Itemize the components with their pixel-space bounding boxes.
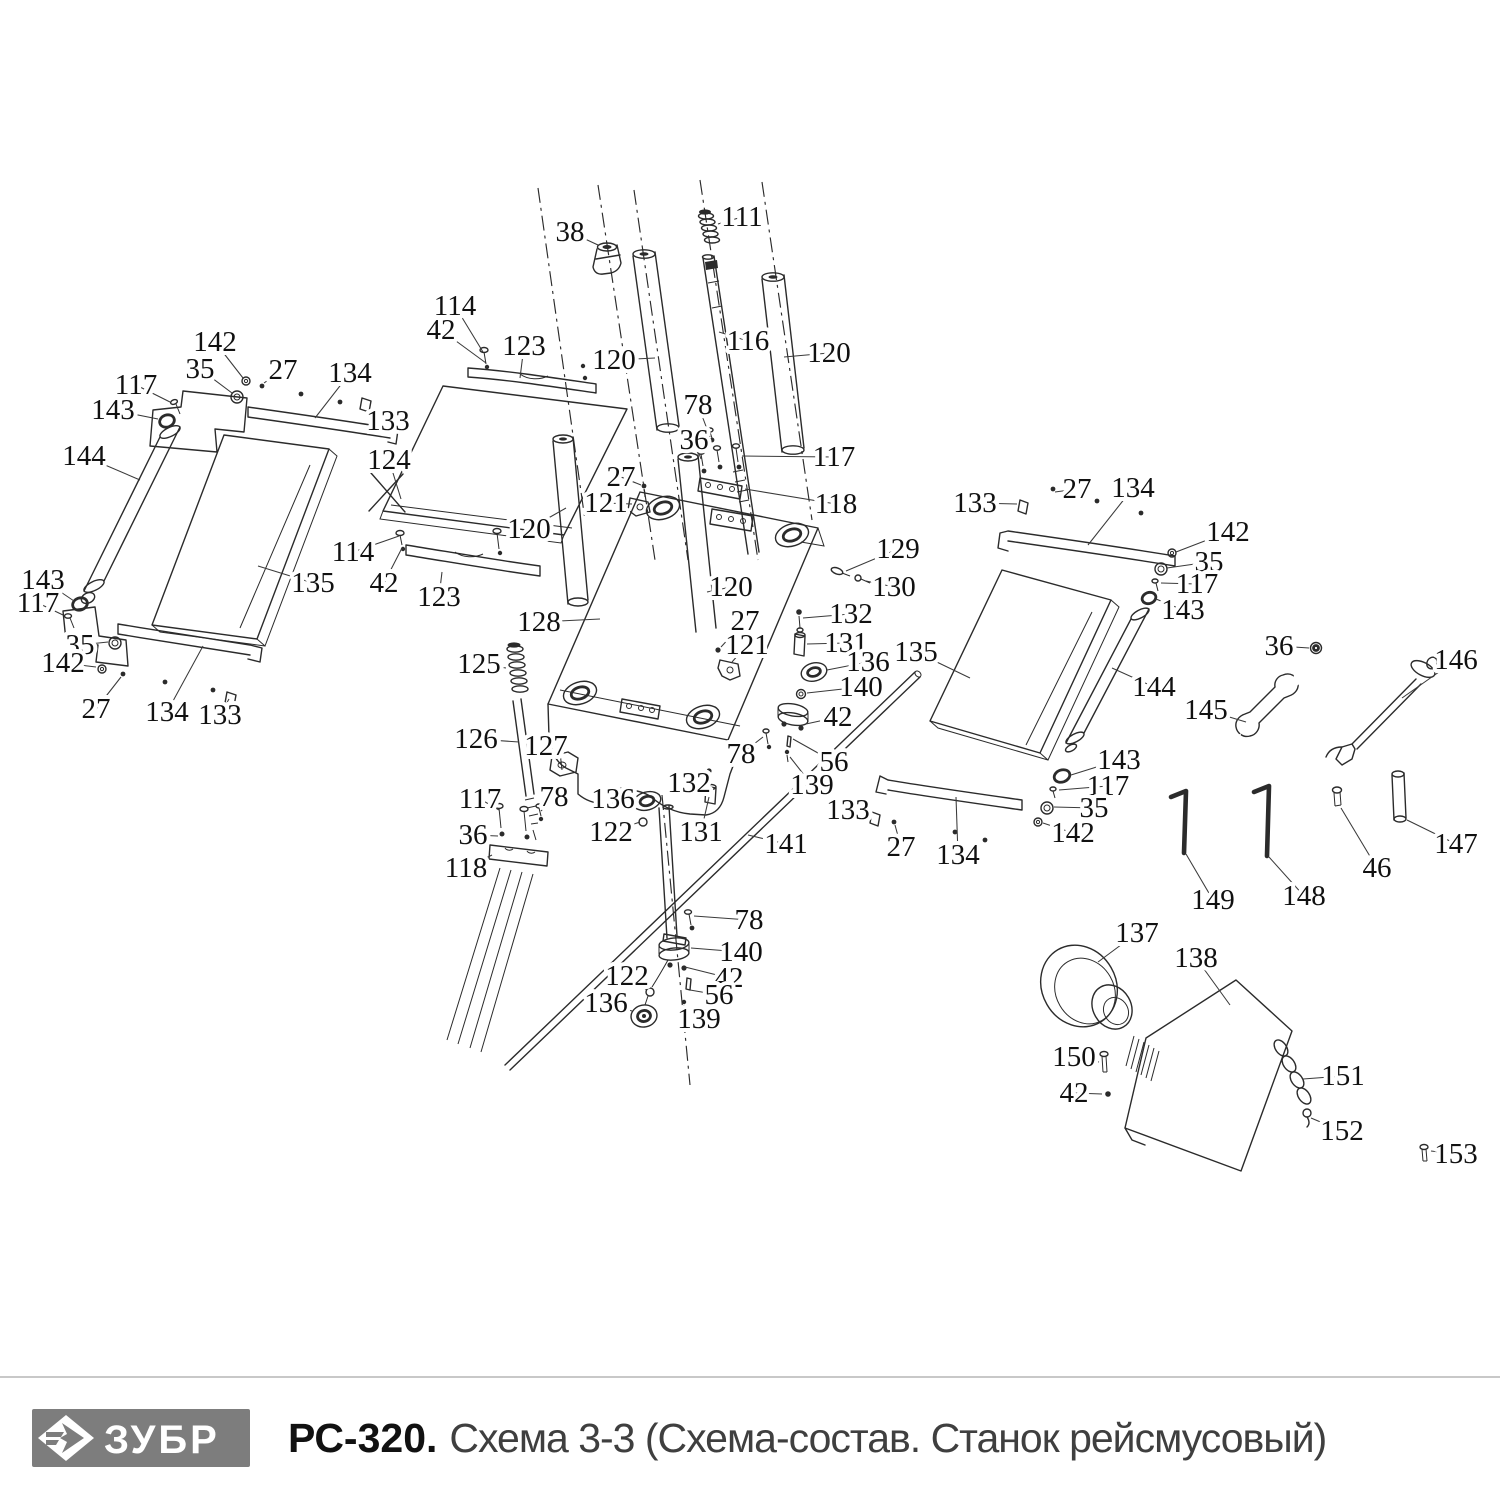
part-callout-134: 134 xyxy=(145,696,189,728)
part-callout-130: 130 xyxy=(872,571,916,603)
part-callout-131: 131 xyxy=(679,816,723,848)
part-callout-134: 134 xyxy=(328,357,372,389)
part-callout-126: 126 xyxy=(454,723,498,755)
part-callout-133: 133 xyxy=(366,405,410,437)
part-callout-27: 27 xyxy=(82,693,111,725)
part-callout-124: 124 xyxy=(367,444,411,476)
part-callout-138: 138 xyxy=(1174,942,1218,974)
part-callout-114: 114 xyxy=(332,536,375,568)
part-callout-133: 133 xyxy=(953,487,997,519)
part-callout-146: 146 xyxy=(1434,644,1478,676)
brand-name: ЗУБР xyxy=(104,1418,220,1462)
part-callout-117: 117 xyxy=(813,441,855,473)
schema-subtitle: Схема 3-3 (Схема-состав. Станок рейсмусо… xyxy=(449,1415,1326,1461)
part-callout-120: 120 xyxy=(709,571,753,603)
part-callout-120: 120 xyxy=(507,513,551,545)
part-callout-150: 150 xyxy=(1052,1041,1096,1073)
part-callout-125: 125 xyxy=(457,648,501,680)
part-callout-42: 42 xyxy=(370,567,399,599)
callout-leader-lines xyxy=(38,217,1456,1154)
part-callout-135: 135 xyxy=(291,567,335,599)
exploded-diagram: 3811111442123120116120142351171432713413… xyxy=(0,0,1500,1376)
part-callout-27: 27 xyxy=(887,831,916,863)
part-callout-144: 144 xyxy=(62,440,106,472)
part-callout-152: 152 xyxy=(1320,1115,1364,1147)
part-callout-121: 121 xyxy=(725,629,769,661)
part-callout-27: 27 xyxy=(269,354,298,386)
nut-38 xyxy=(593,243,621,274)
part-callout-142: 142 xyxy=(1051,817,1095,849)
part-callout-128: 128 xyxy=(517,606,561,638)
footer-title: РС-320.Схема 3-3 (Схема-состав. Станок р… xyxy=(288,1415,1326,1462)
part-callout-120: 120 xyxy=(807,337,851,369)
part-callout-78: 78 xyxy=(735,904,764,936)
part-callout-118: 118 xyxy=(815,488,857,520)
part-callout-144: 144 xyxy=(1132,671,1176,703)
part-callout-42: 42 xyxy=(1060,1077,1089,1109)
screw-rod-126 xyxy=(513,699,538,840)
part-callout-46: 46 xyxy=(1363,852,1392,884)
part-callout-111: 111 xyxy=(721,201,762,233)
pin-147 xyxy=(1392,771,1406,822)
part-callout-142: 142 xyxy=(1206,516,1250,548)
part-callout-139: 139 xyxy=(677,1003,721,1035)
part-callout-36: 36 xyxy=(459,819,488,851)
part-callout-141: 141 xyxy=(764,828,808,860)
part-callout-133: 133 xyxy=(198,699,242,731)
part-callout-123: 123 xyxy=(502,330,546,362)
part-callout-118: 118 xyxy=(445,852,487,884)
part-callout-151: 151 xyxy=(1321,1060,1365,1092)
part-callout-134: 134 xyxy=(1111,472,1155,504)
columns-120 xyxy=(553,250,804,632)
part-callout-136: 136 xyxy=(591,783,635,815)
part-callout-36: 36 xyxy=(1265,630,1294,662)
part-callout-42: 42 xyxy=(824,701,853,733)
screw-46 xyxy=(1333,787,1342,806)
part-callout-132: 132 xyxy=(667,767,711,799)
part-callout-127: 127 xyxy=(524,730,568,762)
part-callout-135: 135 xyxy=(894,636,938,668)
spring-125 xyxy=(507,642,528,692)
part-callout-36: 36 xyxy=(680,424,709,456)
part-callout-145: 145 xyxy=(1184,694,1228,726)
wrench-145 xyxy=(1236,674,1298,736)
page: 3811111442123120116120142351171432713413… xyxy=(0,0,1500,1500)
hex-key-148 xyxy=(1254,786,1269,856)
zubr-logo: ЗУБР xyxy=(32,1409,250,1467)
screw-150 xyxy=(1100,1052,1108,1073)
screw-153 xyxy=(1420,1145,1428,1162)
tools xyxy=(1171,643,1439,857)
part-callout-78: 78 xyxy=(540,781,569,813)
hex-key-149 xyxy=(1171,791,1186,853)
part-callout-117: 117 xyxy=(17,587,59,619)
crank-handle-146 xyxy=(1326,655,1439,765)
ring-122-center xyxy=(639,818,647,826)
mounting-bars-123 xyxy=(396,348,596,577)
part-callout-78: 78 xyxy=(727,738,756,770)
model-number: РС-320. xyxy=(288,1415,437,1461)
part-callout-129: 129 xyxy=(876,533,920,565)
screw-42-cover xyxy=(1105,1091,1111,1097)
part-callout-143: 143 xyxy=(1161,594,1205,626)
part-callout-148: 148 xyxy=(1282,880,1326,912)
part-callout-27: 27 xyxy=(1063,473,1092,505)
part-callout-78: 78 xyxy=(684,389,713,421)
cover-138 xyxy=(1125,980,1292,1171)
part-callout-140: 140 xyxy=(839,671,883,703)
part-callout-153: 153 xyxy=(1434,1138,1478,1170)
part-callout-137: 137 xyxy=(1115,917,1159,949)
part-callout-116: 116 xyxy=(727,325,769,357)
part-callout-149: 149 xyxy=(1191,884,1235,916)
part-callout-142: 142 xyxy=(41,647,85,679)
footer-bar: ЗУБР РС-320.Схема 3-3 (Схема-состав. Ста… xyxy=(0,1376,1500,1498)
part-callout-136: 136 xyxy=(584,987,628,1019)
part-callout-122: 122 xyxy=(589,816,633,848)
part-callout-147: 147 xyxy=(1434,828,1478,860)
callout-labels: 3811111442123120116120142351171432713413… xyxy=(17,201,1478,1170)
part-callout-134: 134 xyxy=(936,839,980,871)
part-callout-35: 35 xyxy=(186,353,215,385)
part-callout-42: 42 xyxy=(427,314,456,346)
part-callout-117: 117 xyxy=(459,783,501,815)
part-callout-121: 121 xyxy=(584,487,628,519)
part-callout-132: 132 xyxy=(829,598,873,630)
part-callout-38: 38 xyxy=(556,216,585,248)
part-callout-133: 133 xyxy=(826,794,870,826)
part-callout-120: 120 xyxy=(592,344,636,376)
hook-152 xyxy=(1303,1109,1311,1127)
part-callout-123: 123 xyxy=(417,581,461,613)
part-callout-143: 143 xyxy=(91,394,135,426)
